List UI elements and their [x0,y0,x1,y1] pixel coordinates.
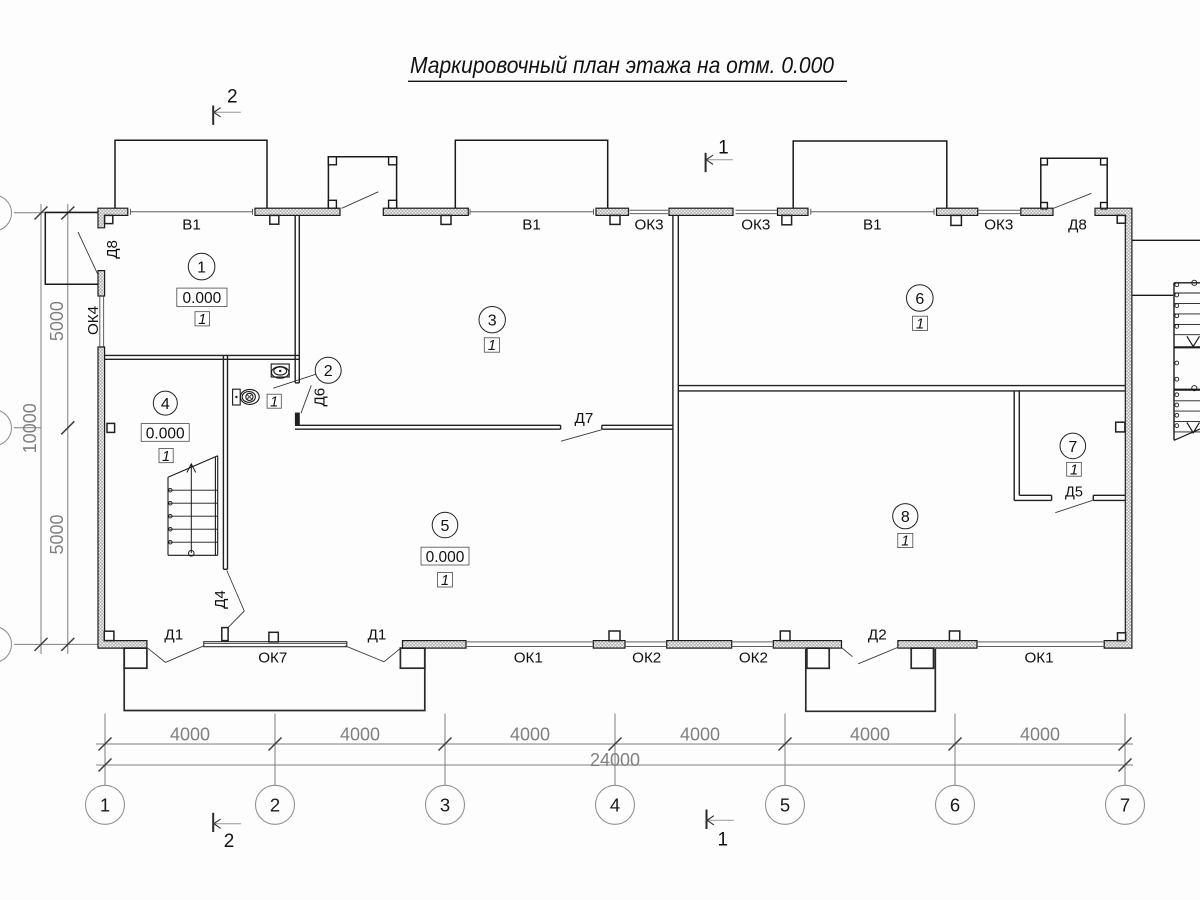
svg-text:4000: 4000 [510,725,550,745]
svg-text:1: 1 [718,829,729,850]
svg-text:10000: 10000 [20,403,40,453]
svg-text:ОК2: ОК2 [739,649,768,666]
svg-text:1: 1 [441,573,449,589]
svg-text:1: 1 [162,449,170,465]
svg-text:4000: 4000 [170,725,210,745]
svg-text:3: 3 [440,795,450,816]
svg-text:0.000: 0.000 [426,549,465,566]
svg-text:Д5: Д5 [1065,484,1083,500]
svg-text:В1: В1 [522,217,541,234]
svg-text:ОК7: ОК7 [258,649,287,666]
svg-text:3: 3 [488,313,497,330]
svg-text:0.000: 0.000 [183,290,222,307]
svg-text:1: 1 [1070,463,1078,479]
svg-text:1: 1 [100,795,110,816]
svg-text:4: 4 [610,795,620,816]
svg-text:1: 1 [270,394,278,410]
svg-text:4000: 4000 [850,725,890,745]
svg-text:2: 2 [224,831,235,852]
svg-text:Д8: Д8 [1068,217,1087,234]
svg-text:5000: 5000 [47,301,67,341]
svg-text:В1: В1 [182,217,201,234]
svg-text:6: 6 [915,291,924,308]
svg-text:2: 2 [270,795,280,816]
svg-text:Маркировочный план этажа на от: Маркировочный план этажа на отм. 0.000 [410,52,834,78]
svg-text:7: 7 [1068,439,1077,456]
svg-text:Д2: Д2 [868,627,887,644]
svg-text:0.000: 0.000 [146,425,185,442]
svg-text:2: 2 [227,87,238,108]
svg-text:ОК1: ОК1 [1024,649,1053,666]
svg-text:1: 1 [197,260,206,277]
svg-text:В1: В1 [863,217,882,234]
svg-text:4: 4 [161,396,170,413]
svg-text:5: 5 [780,795,790,816]
svg-text:ОК3: ОК3 [634,217,663,234]
svg-text:6: 6 [950,795,960,816]
svg-text:Д1: Д1 [164,627,183,644]
svg-text:5000: 5000 [47,514,67,554]
svg-text:Д6: Д6 [312,388,329,407]
svg-text:1: 1 [718,138,729,159]
svg-text:ОК3: ОК3 [741,217,770,234]
svg-text:Д1: Д1 [368,627,387,644]
svg-text:Д4: Д4 [212,590,229,609]
svg-text:ОК1: ОК1 [514,649,543,666]
svg-text:1: 1 [901,534,909,550]
svg-text:ОК2: ОК2 [632,649,661,666]
svg-text:5: 5 [441,518,450,535]
svg-text:Д8: Д8 [104,240,121,259]
svg-text:4000: 4000 [1020,725,1060,745]
svg-text:2: 2 [324,363,333,380]
svg-text:ОК3: ОК3 [984,217,1013,234]
svg-text:ОК4: ОК4 [85,306,102,335]
svg-text:4000: 4000 [680,725,720,745]
svg-text:1: 1 [488,338,496,354]
svg-text:4000: 4000 [340,725,380,745]
svg-text:8: 8 [901,509,910,526]
svg-text:Д7: Д7 [575,410,594,427]
svg-text:24000: 24000 [590,750,640,770]
svg-text:1: 1 [198,312,206,328]
svg-text:1: 1 [916,317,924,333]
svg-text:7: 7 [1120,795,1130,816]
